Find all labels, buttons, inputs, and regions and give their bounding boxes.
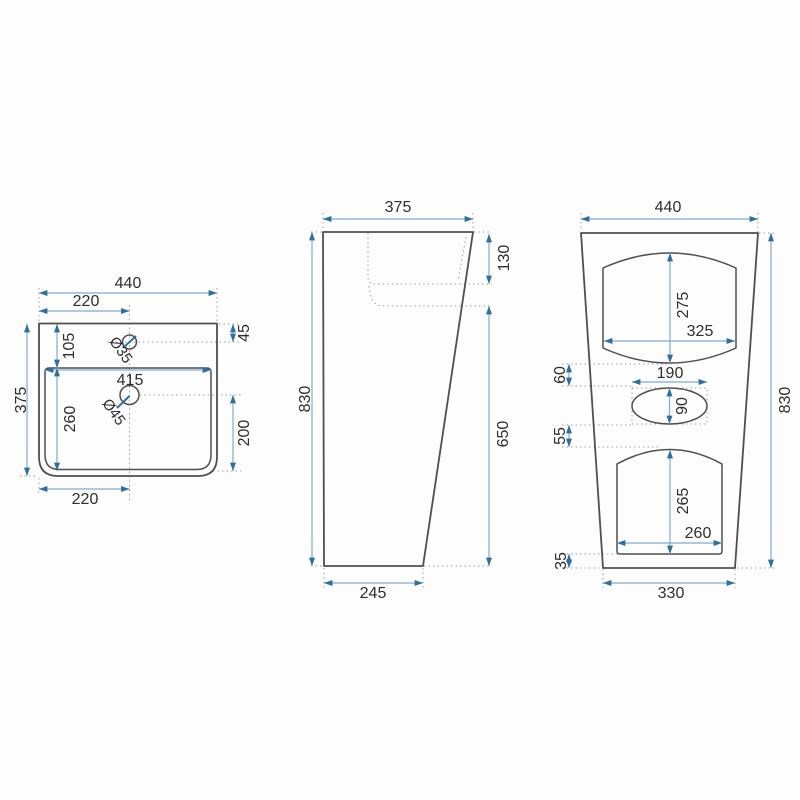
dim-side-top-depth: 375 <box>385 199 412 216</box>
dim-top-tap-to-back: 45 <box>236 324 253 342</box>
dim-front-oval-height: 90 <box>674 397 691 415</box>
dim-top-overall-width: 440 <box>115 275 142 292</box>
dim-front-gap-above-oval: 60 <box>552 366 569 384</box>
hidden-basin-inner-profile <box>368 233 464 284</box>
dim-front-overall-height: 830 <box>777 387 794 414</box>
drawing-canvas: 440 220 105 45 Ø35 415 Ø45 260 200 375 2… <box>0 0 800 800</box>
dim-top-drain-offset: 220 <box>72 491 99 508</box>
dim-top-overall-depth: 375 <box>13 387 30 414</box>
hidden-basin-back-wall <box>458 237 466 281</box>
dim-front-floor-clearance: 35 <box>553 552 570 570</box>
dim-front-upper-recess-height: 275 <box>675 292 692 319</box>
dim-top-tap-offset: 220 <box>73 293 100 310</box>
dim-front-lower-recess-height: 265 <box>675 488 692 515</box>
dim-top-basin-width: 415 <box>117 372 144 389</box>
dim-top-back-to-basin: 105 <box>61 333 78 360</box>
dim-front-oval-width: 190 <box>657 365 684 382</box>
pedestal-side-outline <box>323 232 473 566</box>
dim-top-drain-to-front: 200 <box>236 420 253 447</box>
dim-side-under-basin-height: 650 <box>495 421 512 448</box>
washbasin-technical-drawing: 440 220 105 45 Ø35 415 Ø45 260 200 375 2… <box>0 0 800 800</box>
top-view: 440 220 105 45 Ø35 415 Ø45 260 200 375 2… <box>13 275 253 508</box>
dim-front-base-width: 330 <box>658 585 685 602</box>
dim-top-basin-depth: 260 <box>62 406 79 433</box>
dim-front-lower-recess-width: 260 <box>685 525 712 542</box>
dim-front-overall-width: 440 <box>655 199 682 216</box>
dim-front-gap-below-oval: 55 <box>552 427 569 445</box>
front-view: 440 275 325 60 190 90 55 265 260 35 330 … <box>552 199 794 602</box>
dim-front-upper-recess-width: 325 <box>687 323 714 340</box>
dim-tap-hole-diameter: Ø35 <box>105 334 135 367</box>
side-view: 375 830 130 650 245 <box>297 199 513 602</box>
dim-side-base-depth: 245 <box>360 585 387 602</box>
hidden-basin-underside <box>369 286 461 306</box>
dim-side-basin-depth: 130 <box>496 245 513 272</box>
dim-side-overall-height: 830 <box>297 386 314 413</box>
